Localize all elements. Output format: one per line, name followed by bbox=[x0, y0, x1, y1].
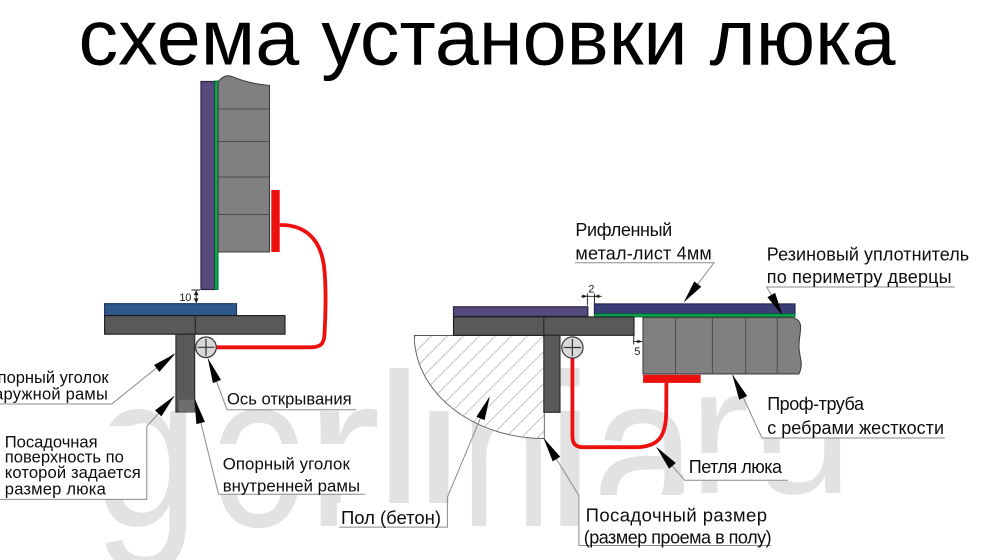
svg-text:Посадочный размер: Посадочный размер bbox=[586, 505, 767, 526]
svg-text:2: 2 bbox=[588, 283, 594, 295]
svg-text:Резиновый уплотнитель: Резиновый уплотнитель bbox=[767, 244, 969, 264]
svg-text:10: 10 bbox=[179, 292, 191, 304]
svg-text:Проф-труба: Проф-труба bbox=[767, 394, 865, 414]
svg-text:по периметру дверцы: по периметру дверцы bbox=[767, 267, 952, 287]
svg-text:метал-лист 4мм: метал-лист 4мм bbox=[575, 243, 711, 263]
svg-text:размер люка: размер люка bbox=[5, 480, 107, 499]
svg-text:Опорный уголок: Опорный уголок bbox=[223, 455, 351, 474]
svg-text:5: 5 bbox=[634, 346, 640, 358]
svg-text:Опорный уголок: Опорный уголок bbox=[0, 369, 109, 387]
svg-text:Петля люка: Петля люка bbox=[689, 457, 783, 477]
svg-text:Рифленный: Рифленный bbox=[575, 220, 672, 240]
svg-text:Пол (бетон): Пол (бетон) bbox=[341, 507, 441, 528]
svg-text:внутренней рамы: внутренней рамы bbox=[223, 476, 360, 495]
svg-text:Ось открывания: Ось открывания bbox=[227, 390, 352, 409]
svg-text:схема установки люка: схема установки люка bbox=[79, 0, 897, 81]
svg-text:с ребрами жесткости: с ребрами жесткости bbox=[767, 418, 944, 438]
svg-text:наружной рамы: наружной рамы bbox=[0, 386, 108, 404]
svg-text:(размер проема в полу): (размер проема в полу) bbox=[584, 528, 772, 548]
